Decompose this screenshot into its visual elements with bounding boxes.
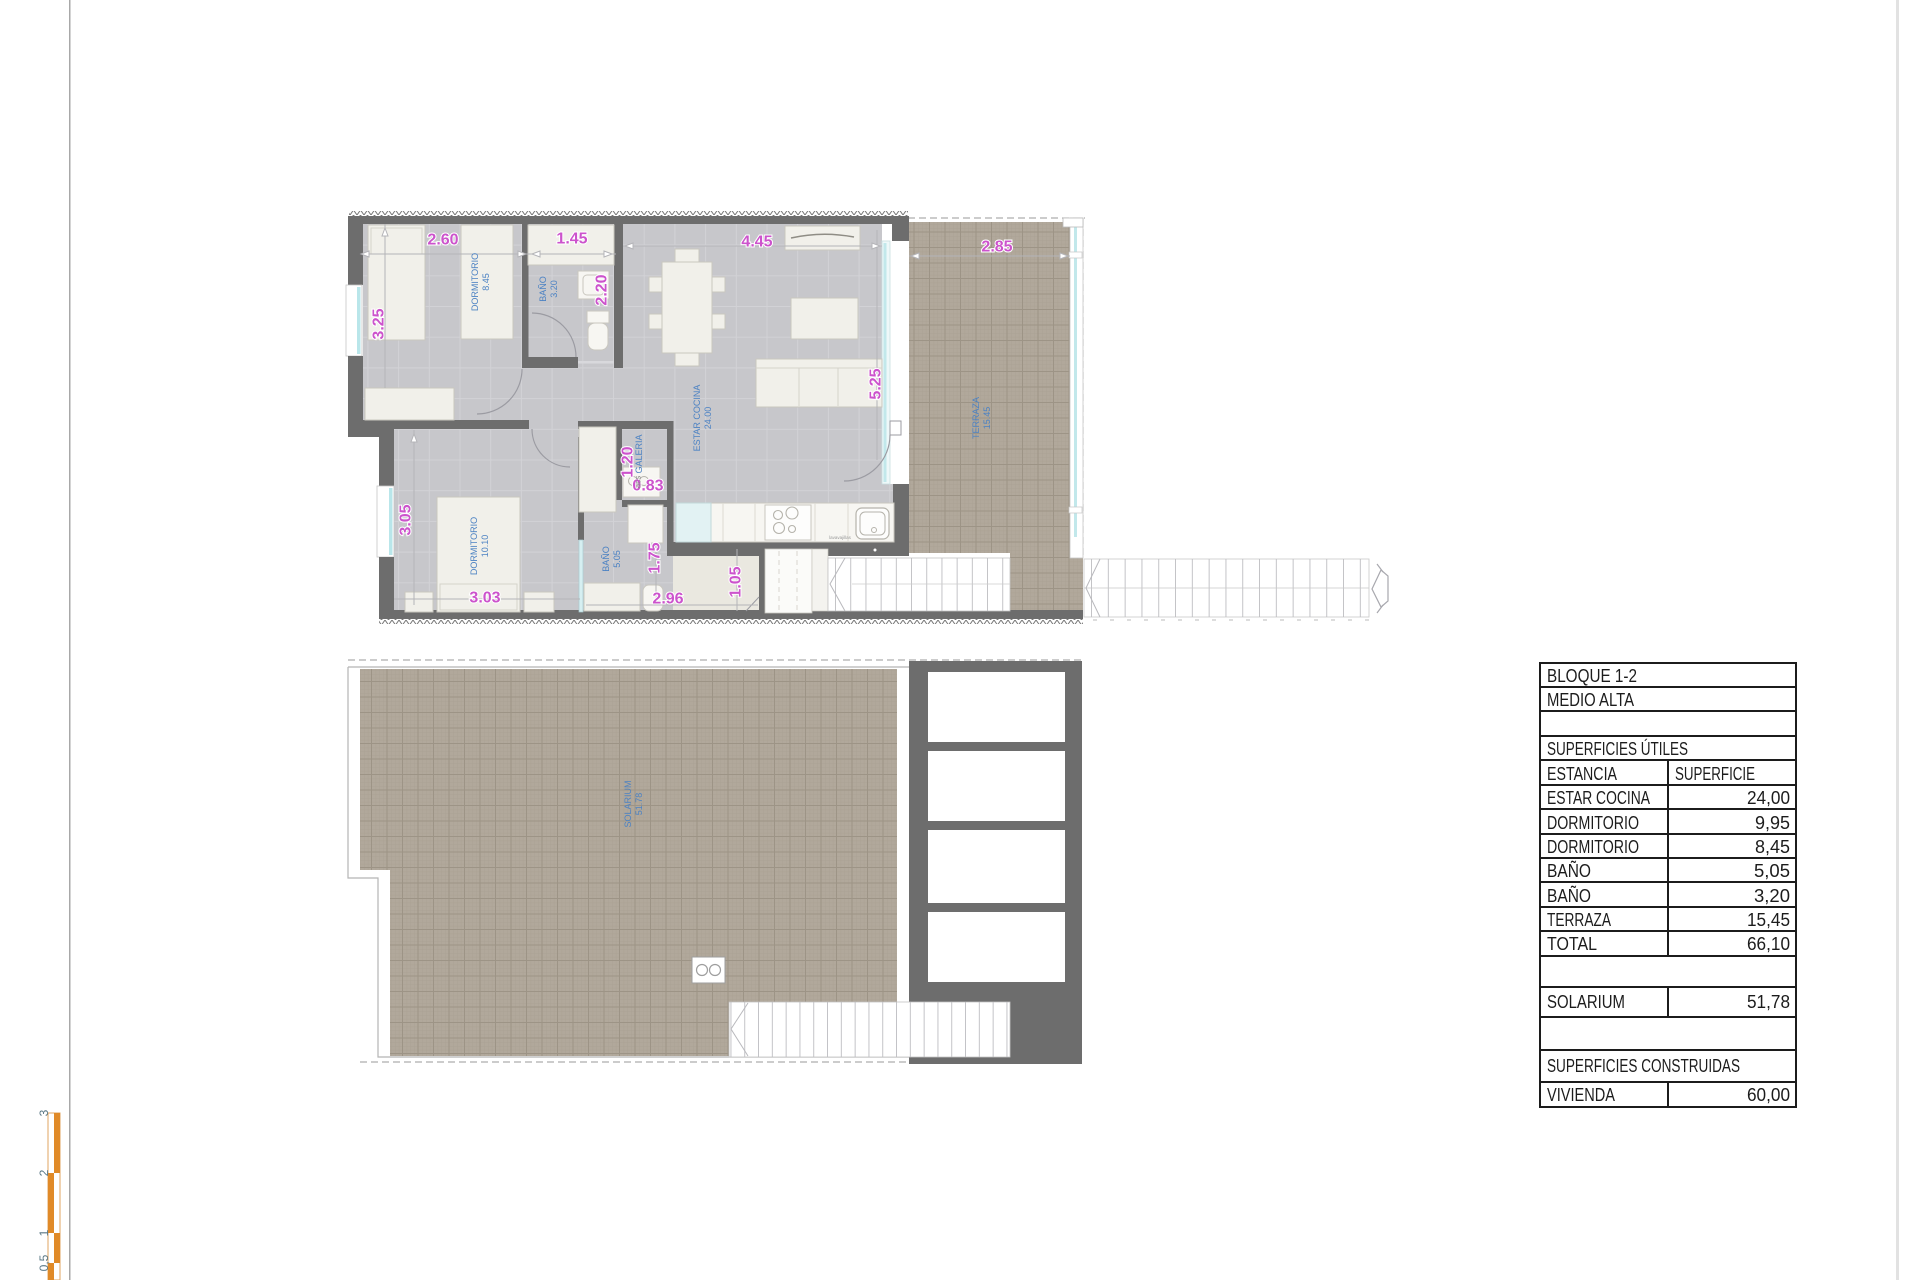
svg-text:ESTAR COCINA: ESTAR COCINA	[1547, 788, 1650, 808]
svg-text:2.96: 2.96	[652, 591, 683, 608]
svg-text:60,00: 60,00	[1747, 1085, 1790, 1105]
svg-text:1.75: 1.75	[647, 542, 664, 573]
svg-text:3.03: 3.03	[469, 590, 500, 607]
svg-text:5,05: 5,05	[1754, 861, 1790, 881]
svg-text:2.85: 2.85	[981, 239, 1012, 256]
svg-text:1.05: 1.05	[728, 566, 745, 597]
svg-text:BAÑO: BAÑO	[1547, 885, 1591, 906]
svg-text:51,78: 51,78	[1747, 992, 1790, 1012]
svg-text:3.25: 3.25	[371, 308, 388, 339]
svg-text:DORMITORIO: DORMITORIO	[1547, 837, 1639, 857]
svg-text:BLOQUE 1-2: BLOQUE 1-2	[1547, 666, 1637, 686]
svg-text:2: 2	[37, 1169, 51, 1176]
svg-text:SUPERFICIE: SUPERFICIE	[1675, 764, 1755, 784]
svg-text:SUPERFICIES ÚTILES: SUPERFICIES ÚTILES	[1547, 738, 1688, 759]
svg-text:5.25: 5.25	[868, 368, 885, 399]
svg-text:9,95: 9,95	[1755, 813, 1790, 833]
svg-text:4.45: 4.45	[741, 234, 772, 251]
svg-text:1: 1	[37, 1229, 51, 1236]
svg-text:MEDIO ALTA: MEDIO ALTA	[1547, 690, 1634, 710]
svg-text:3.05: 3.05	[398, 504, 415, 535]
svg-text:3: 3	[37, 1109, 51, 1116]
svg-text:8,45: 8,45	[1755, 837, 1790, 857]
svg-text:SUPERFICIES CONSTRUIDAS: SUPERFICIES CONSTRUIDAS	[1547, 1056, 1740, 1076]
svg-text:BAÑO: BAÑO	[1547, 860, 1591, 881]
svg-text:GALERIA: GALERIA	[634, 434, 644, 473]
svg-text:2.20: 2.20	[594, 274, 611, 305]
svg-text:SOLARIUM: SOLARIUM	[1547, 992, 1625, 1012]
svg-text:acs: acs	[634, 476, 643, 488]
svg-text:0,5: 0,5	[37, 1254, 51, 1271]
svg-text:3,20: 3,20	[1754, 886, 1790, 906]
svg-text:lavavajillas: lavavajillas	[829, 535, 852, 540]
svg-text:15,45: 15,45	[1747, 910, 1790, 930]
svg-text:DORMITORIO: DORMITORIO	[1547, 813, 1639, 833]
svg-text:VIVIENDA: VIVIENDA	[1547, 1085, 1615, 1105]
svg-text:TOTAL: TOTAL	[1547, 934, 1597, 954]
svg-text:66,10: 66,10	[1747, 934, 1790, 954]
svg-text:24,00: 24,00	[1747, 788, 1790, 808]
svg-text:ESTANCIA: ESTANCIA	[1547, 764, 1617, 784]
svg-text:2.60: 2.60	[427, 232, 458, 249]
svg-text:1.45: 1.45	[556, 231, 587, 248]
svg-text:TERRAZA: TERRAZA	[1547, 910, 1611, 930]
